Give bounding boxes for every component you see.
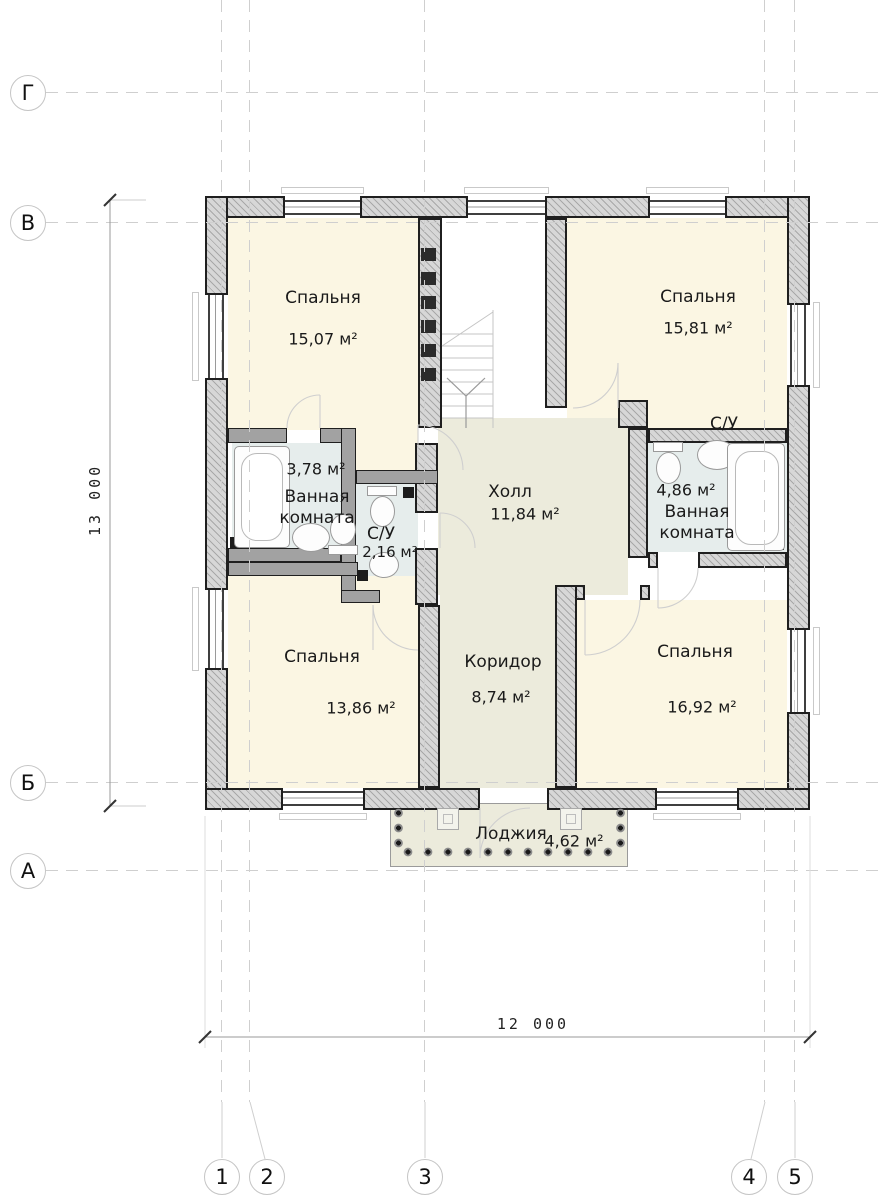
wall-segment [205, 378, 228, 590]
wall-segment [205, 196, 228, 295]
wall-segment [555, 585, 577, 788]
loggia-post [437, 808, 459, 830]
axis-bubble-1: 1 [204, 1159, 240, 1195]
axis-leaders [222, 1102, 795, 1159]
axis-label: 3 [418, 1165, 431, 1189]
bedroom-bottom-right-fill [577, 600, 787, 788]
window-sill [279, 813, 367, 820]
loggia-post [560, 808, 582, 830]
grid-line-axis-3 [424, 0, 425, 1102]
wall-segment [787, 196, 810, 305]
toilet-tank-symbol [328, 545, 358, 555]
room-area: 15,07 м² [288, 330, 357, 349]
wall-segment [618, 400, 648, 428]
room-label: С/У [710, 414, 738, 434]
axis-bubble-b: Б [10, 765, 46, 801]
grid-line-axis-a [46, 870, 880, 871]
window [285, 200, 360, 215]
window-sill [813, 302, 820, 388]
room-area: 11,84 м² [490, 505, 559, 524]
axis-label: 4 [742, 1165, 755, 1189]
room-label: Спальня [284, 647, 360, 667]
window-sill [192, 292, 199, 381]
room-area: 2,16 м² [362, 543, 418, 561]
toilet-tank-symbol [653, 442, 683, 452]
room-area: 16,92 м² [667, 698, 736, 717]
bedroom-bottom-left-fill [228, 576, 418, 788]
axis-label: 5 [788, 1165, 801, 1189]
toilet-bowl-symbol [656, 452, 681, 484]
room-area: 3,78 м² [286, 460, 345, 479]
room-label: Лоджия [475, 824, 547, 844]
room-label: Спальня [660, 287, 736, 307]
room-label: Холл [488, 482, 532, 502]
axis-bubble-2: 2 [249, 1159, 285, 1195]
axis-bubble-4: 4 [731, 1159, 767, 1195]
grid-line-axis-v [46, 222, 880, 223]
loggia-balusters-left [392, 806, 405, 848]
grid-line-axis-2 [249, 0, 250, 1102]
window [790, 305, 806, 385]
axis-label: 2 [260, 1165, 273, 1189]
axis-bubble-5: 5 [777, 1159, 813, 1195]
room-area: 13,86 м² [326, 699, 395, 718]
window-sill [464, 187, 549, 194]
room-area: 15,81 м² [663, 319, 732, 338]
window-sill [653, 813, 741, 820]
wall-segment [787, 385, 810, 630]
room-area: 8,74 м² [471, 688, 530, 707]
wall-stair-right [545, 218, 567, 408]
grid-line-axis-b [46, 782, 880, 783]
wall-partition [356, 470, 438, 484]
window-sill [192, 587, 199, 671]
room-label: Ванная комната [641, 502, 753, 545]
loggia-balusters-right [614, 806, 627, 848]
axis-bubble-v: В [10, 205, 46, 241]
floor-plan-page: { "drawing_type": "architectural floor p… [0, 0, 880, 1200]
window-sill [281, 187, 364, 194]
window [650, 200, 725, 215]
window-sill [646, 187, 729, 194]
axis-bubble-a: А [10, 853, 46, 889]
stairs-symbol [442, 310, 493, 428]
grid-line-axis-g [46, 92, 880, 93]
axis-bubble-3: 3 [407, 1159, 443, 1195]
window [657, 791, 737, 806]
room-area: 4,62 м² [544, 832, 603, 851]
wall-segment [547, 788, 657, 810]
grid-line-axis-1 [221, 0, 222, 1102]
wall-segment [640, 585, 650, 600]
room-label: Коридор [464, 652, 541, 672]
axis-bubble-g: Г [10, 75, 46, 111]
room-label: Спальня [285, 288, 361, 308]
room-label: С/У [367, 524, 395, 544]
column-mark [403, 487, 414, 498]
grid-line-axis-5 [794, 0, 795, 1102]
window [790, 630, 806, 712]
window-sill [813, 627, 820, 715]
wall-segment [363, 788, 480, 810]
window [468, 200, 545, 215]
wall-segment [205, 788, 283, 810]
wall-segment [737, 788, 810, 810]
wall-partition [228, 562, 358, 576]
wall-partition [228, 548, 341, 562]
dimension-width: 12 000 [468, 1015, 598, 1033]
wall-segment [418, 605, 440, 788]
window [283, 791, 363, 806]
wall-segment [698, 552, 787, 568]
axis-label: 1 [215, 1165, 228, 1189]
room-label: Ванная комната [261, 487, 373, 530]
room-label: Спальня [657, 642, 733, 662]
dimension-height: 13 000 [86, 440, 104, 560]
room-area: 4,86 м² [656, 481, 715, 500]
toilet-bowl-symbol [370, 496, 395, 527]
wall-segment [415, 548, 438, 605]
wall-segment [545, 196, 650, 218]
wall-segment [648, 552, 658, 568]
wall-segment [360, 196, 468, 218]
axis-label: Г [22, 81, 35, 105]
wall-partition [228, 428, 287, 443]
axis-label: А [21, 859, 35, 883]
grid-line-axis-4 [764, 0, 765, 1102]
axis-label: Б [21, 771, 35, 795]
column-mark [357, 570, 368, 581]
wall-partition [341, 590, 380, 603]
axis-label: В [21, 211, 35, 235]
